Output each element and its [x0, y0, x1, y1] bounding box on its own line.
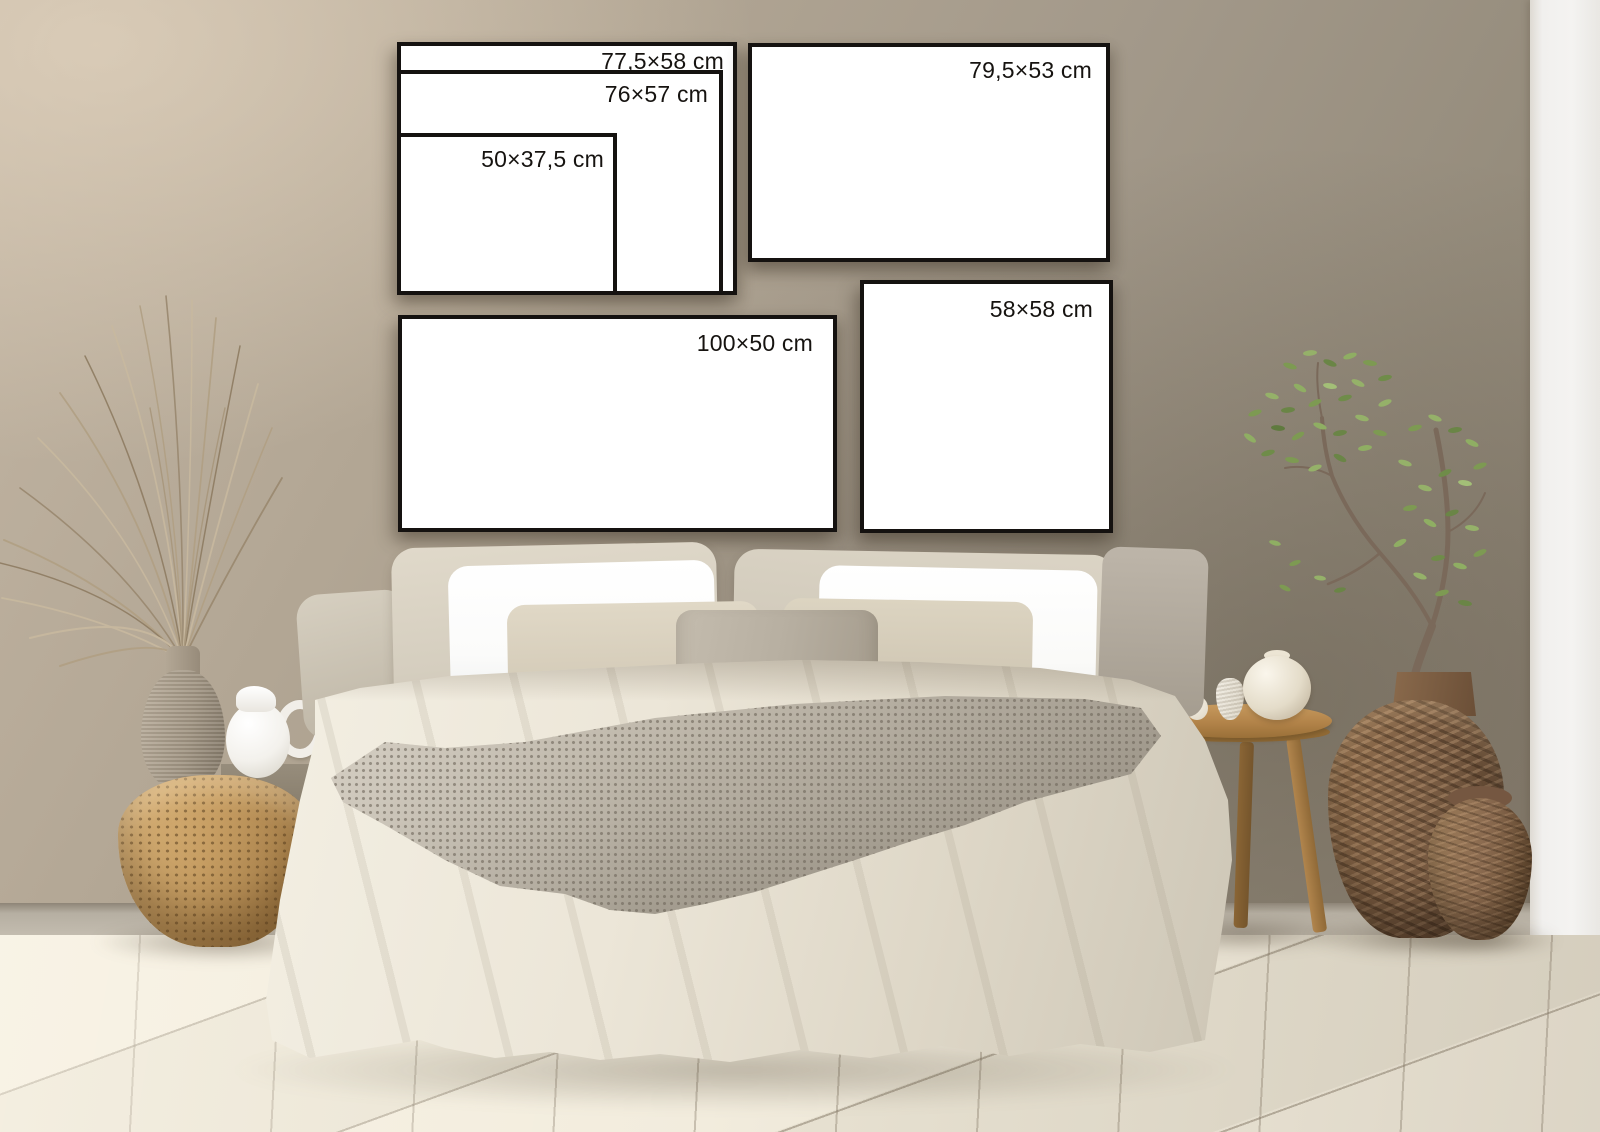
bedroom-poster-size-mockup: 77,5×58 cm 76×57 cm 50×37,5 cm 79,5×53 c… — [0, 0, 1600, 1132]
size-label-100x50: 100×50 cm — [697, 330, 813, 356]
tree-foliage — [1243, 350, 1488, 607]
dried-pampas-grass — [0, 288, 332, 680]
right-white-wall-panel — [1530, 0, 1600, 940]
grass-strands — [0, 296, 282, 666]
size-frame-79-5x53: 79,5×53 cm — [748, 43, 1110, 262]
size-frame-50x37-5: 50×37,5 cm — [397, 133, 617, 295]
size-frame-100x50: 100×50 cm — [398, 315, 837, 532]
tree-branches — [1285, 363, 1485, 706]
size-label-58x58: 58×58 cm — [990, 296, 1093, 322]
size-label-79-5x53: 79,5×53 cm — [969, 57, 1092, 83]
size-label-76x57: 76×57 cm — [605, 81, 708, 107]
ceramic-vase — [141, 670, 225, 788]
potted-green-tree — [1180, 318, 1520, 708]
size-label-50x37-5: 50×37,5 cm — [481, 146, 604, 172]
size-frame-58x58: 58×58 cm — [860, 280, 1113, 533]
white-jug — [226, 702, 290, 778]
white-jug-spout — [236, 686, 276, 712]
